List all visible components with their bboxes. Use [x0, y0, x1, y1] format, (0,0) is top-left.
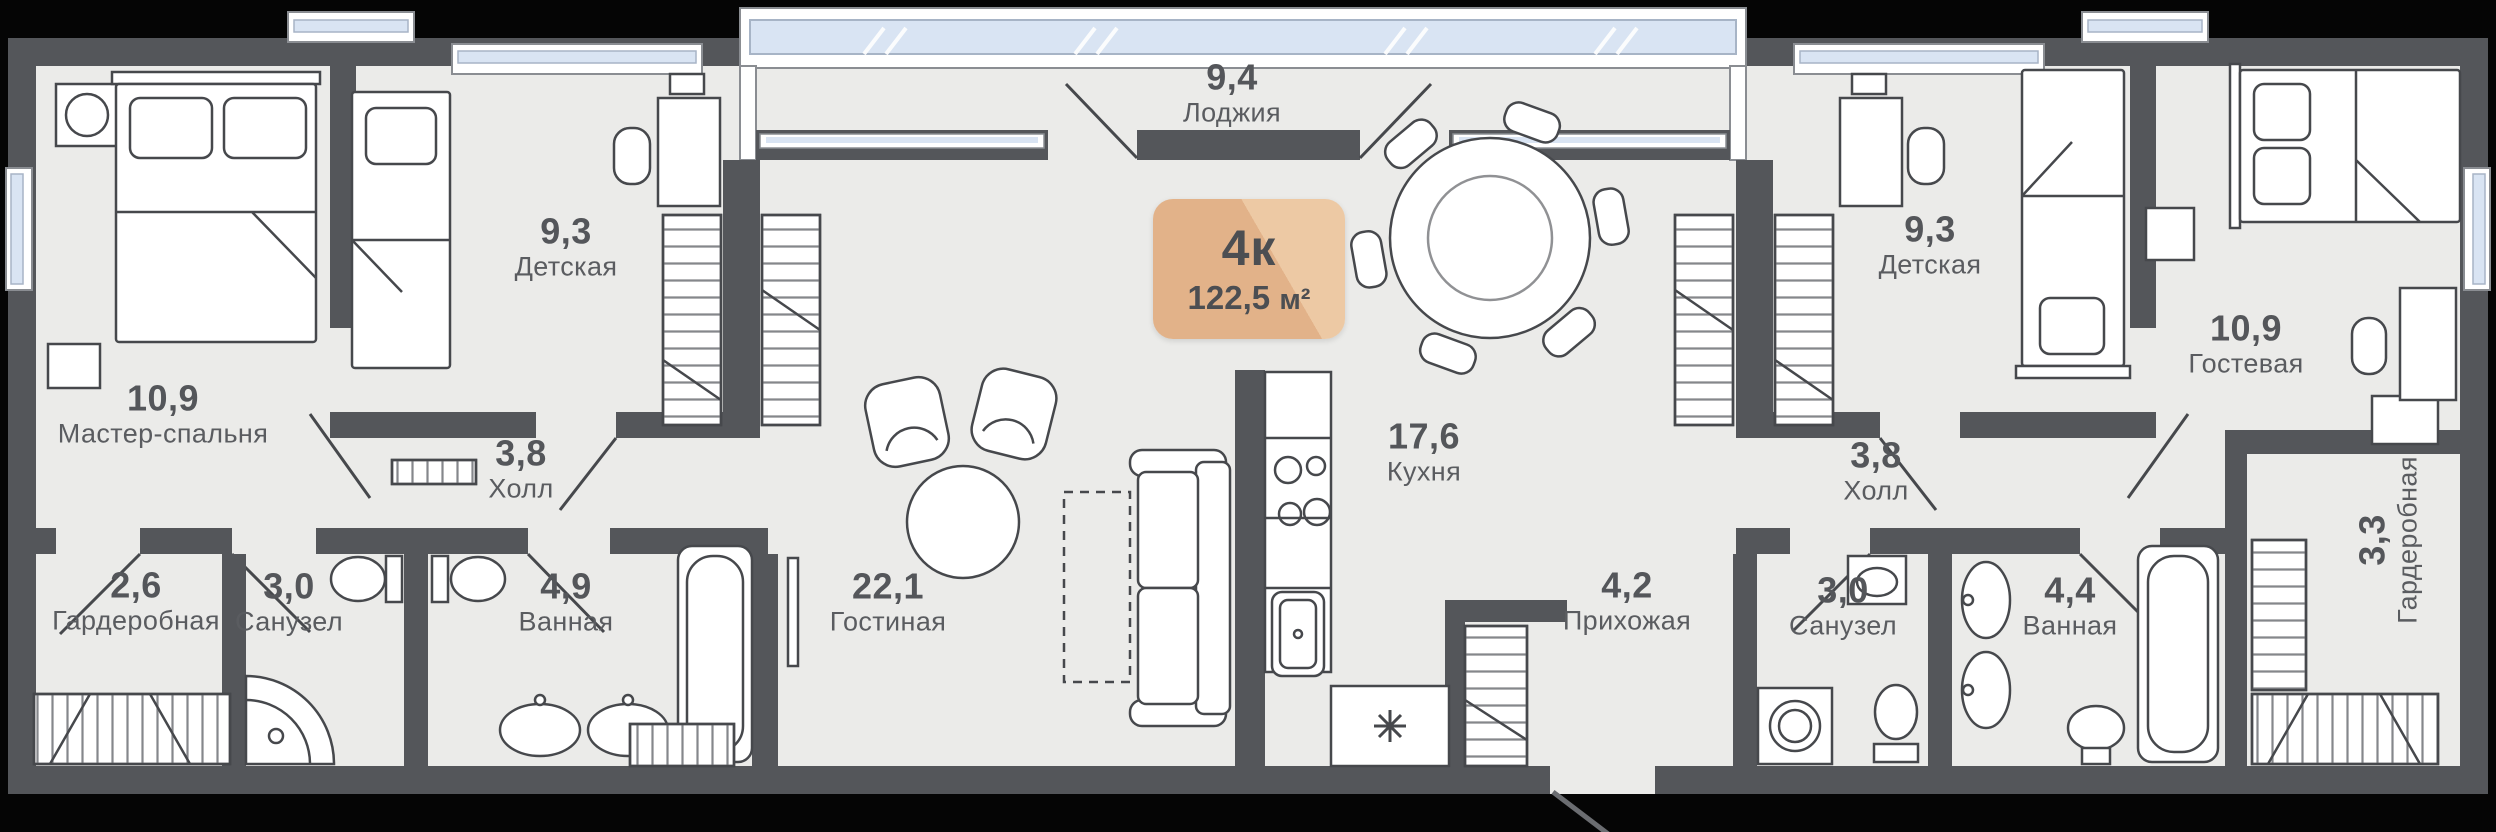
- apartment-area-unit: м²: [1279, 284, 1310, 316]
- apartment-type: 4к: [1222, 223, 1277, 273]
- apartment-area: 122,5 м²: [1188, 281, 1311, 315]
- floor-plan-drawing: [0, 0, 2496, 832]
- apartment-area-value: 122,5: [1188, 279, 1271, 316]
- apartment-badge: 4к 122,5 м²: [1153, 199, 1345, 339]
- floor-plan: 9,4Лоджия 10,9Мастер-спальня 9,3Детская …: [0, 0, 2496, 832]
